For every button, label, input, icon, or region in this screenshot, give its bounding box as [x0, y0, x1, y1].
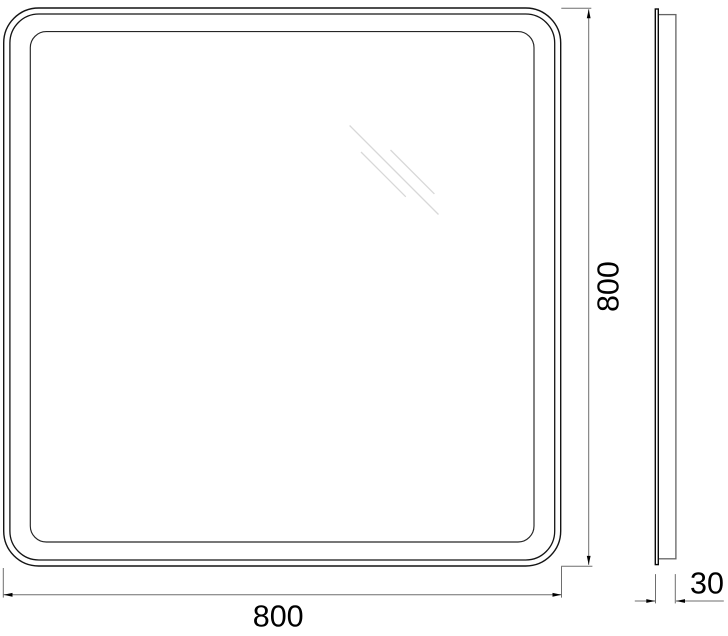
- svg-text:800: 800: [253, 600, 304, 634]
- svg-text:800: 800: [592, 261, 626, 312]
- svg-text:30: 30: [690, 566, 724, 600]
